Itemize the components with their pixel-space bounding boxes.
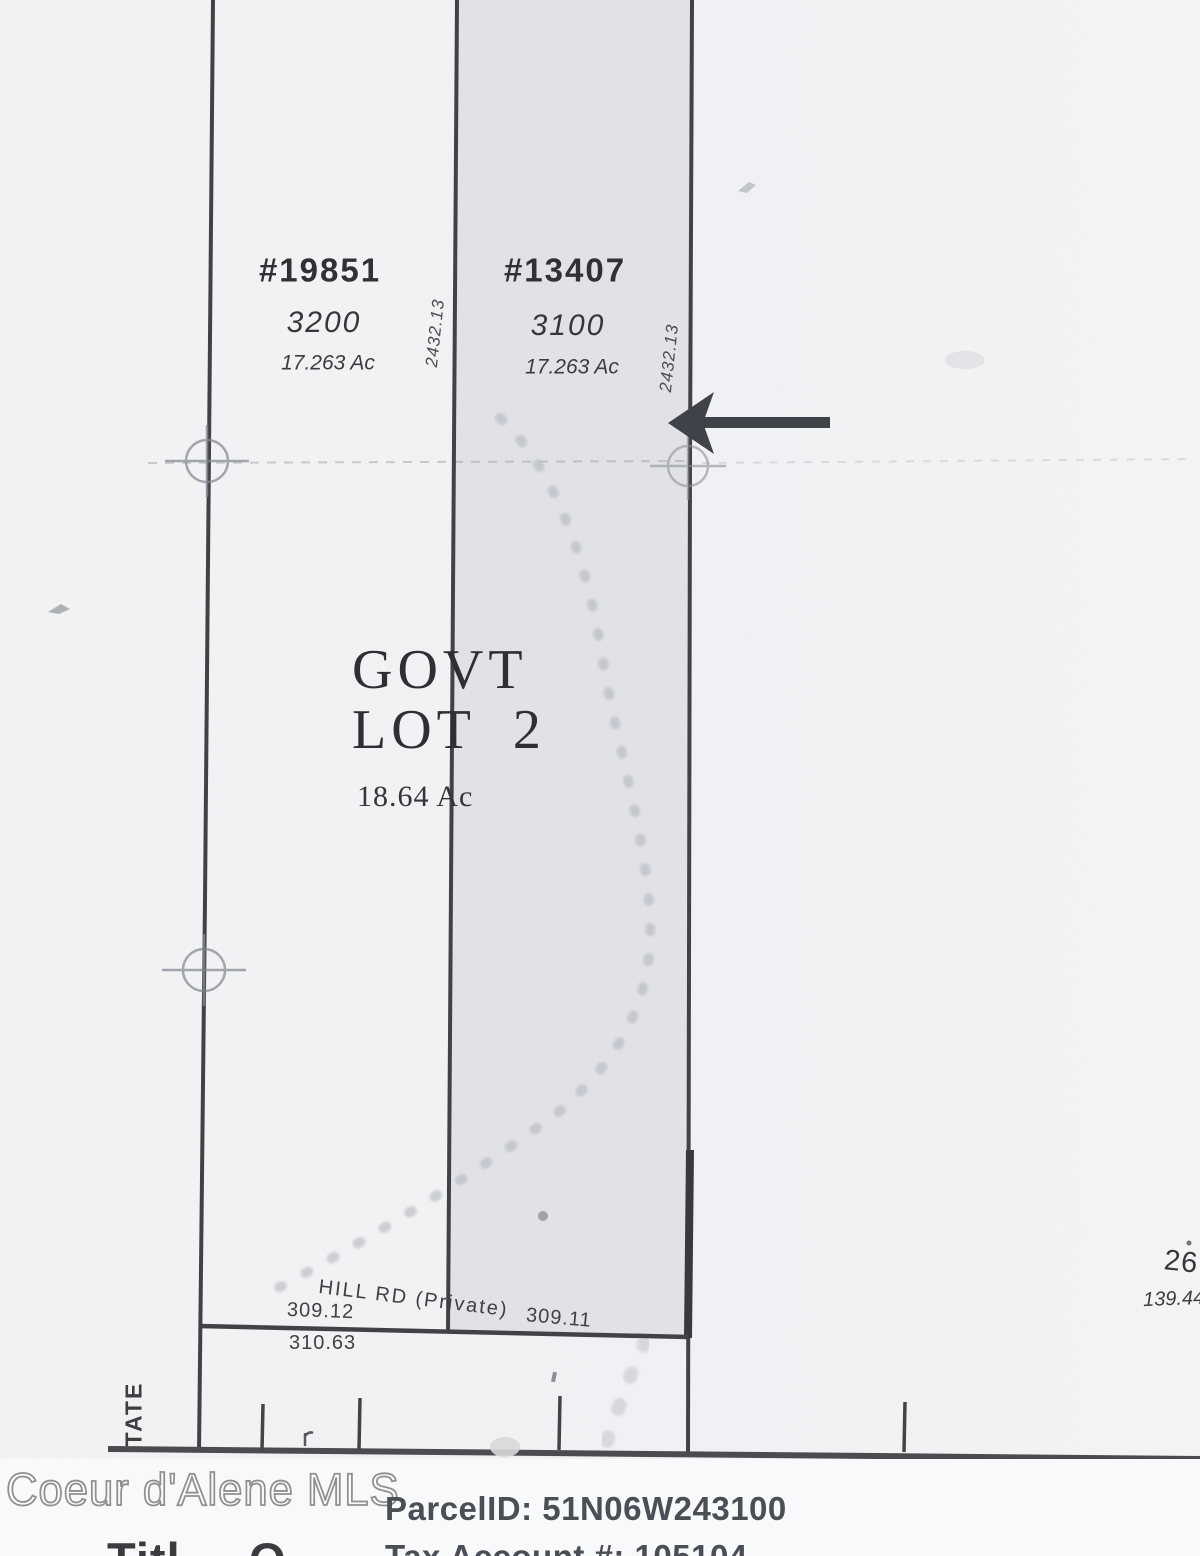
govt-lot-title-line2: LOT 2 <box>352 702 546 758</box>
parcel-left-acreage: 17.263 Ac <box>281 353 375 374</box>
govt-lot-title-line1: GOVT <box>352 642 528 698</box>
plat-map-drawing <box>0 0 1200 1556</box>
title-company-logo-fragment: O <box>249 1536 287 1556</box>
parcel-right-id: #13407 <box>504 254 626 287</box>
tax-account-text: Tax Account #: 105104 <box>385 1540 748 1556</box>
parcel-right-lot: 3100 <box>531 311 606 341</box>
road-frontage-left: 309.12 <box>287 1300 355 1322</box>
parcel-right-acreage: 17.263 Ac <box>525 357 619 378</box>
plat-map-scan: #19851 3200 17.263 Ac #13407 3100 17.263… <box>0 0 1200 1556</box>
mls-watermark: Coeur d'Alene MLS <box>6 1467 400 1512</box>
road-south-dimension: 310.63 <box>289 1333 356 1353</box>
road-frontage-right: 309.11 <box>525 1305 592 1331</box>
paper-noise <box>0 0 1200 1556</box>
parcel-left-lot: 3200 <box>287 308 362 338</box>
right-edge-section-number: 26 <box>1163 1246 1200 1278</box>
left-edge-partial-label: TATE <box>123 1382 146 1447</box>
title-company-logo-fragment: Titl <box>107 1536 181 1556</box>
govt-lot-acreage: 18.64 Ac <box>357 782 473 812</box>
right-edge-distance: 139.44 <box>1143 1288 1200 1310</box>
parcel-id-text: ParcelID: 51N06W243100 <box>385 1492 787 1525</box>
parcel-left-id: #19851 <box>259 254 381 287</box>
